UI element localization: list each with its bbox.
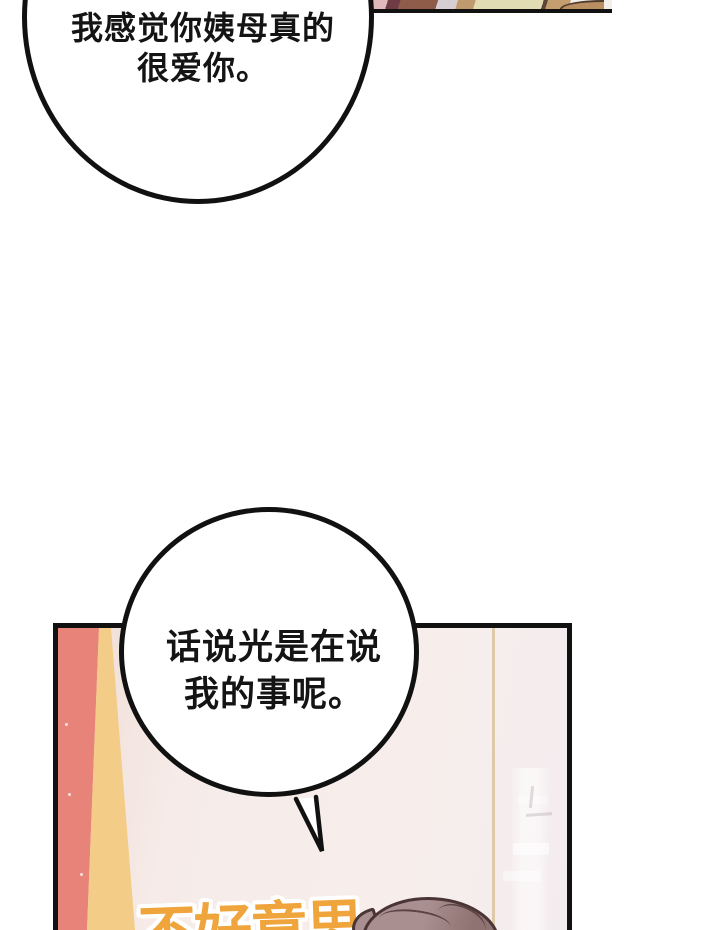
speech-line: 很爱你。 xyxy=(30,48,376,88)
speech-line: 我感觉你姨母真的 xyxy=(30,8,376,48)
sfx-text: 不好意思 xyxy=(137,879,364,930)
speech-bubble-tail xyxy=(280,775,340,860)
wall-highlight xyxy=(518,796,548,804)
speech-line: 话说光是在说 xyxy=(119,625,429,672)
hair-strand-line xyxy=(431,897,492,930)
curtain-sparkle xyxy=(80,873,83,876)
top-panel-fragment xyxy=(366,0,612,13)
wall-highlight xyxy=(513,843,549,855)
wall-highlight xyxy=(503,871,541,881)
comic-page: 我感觉你姨母真的 很爱你。 不好意思 话说光是在说 我的事呢。 xyxy=(0,0,720,930)
curtain-sparkle xyxy=(68,793,71,796)
speech-bubble-1-text: 我感觉你姨母真的 很爱你。 xyxy=(30,8,376,88)
wall-seam-line xyxy=(492,628,495,930)
speech-line: 我的事呢。 xyxy=(119,672,429,719)
curtain-sparkle xyxy=(65,723,68,726)
speech-bubble-2-text: 话说光是在说 我的事呢。 xyxy=(119,625,429,719)
character-head xyxy=(362,897,500,930)
